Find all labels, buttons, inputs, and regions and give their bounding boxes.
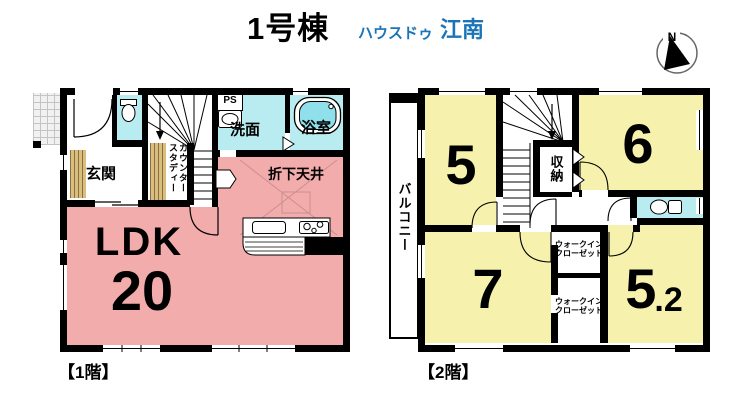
wall — [630, 197, 637, 218]
balcony-door — [418, 245, 425, 278]
floor2-caption: 【2階】 — [418, 364, 478, 381]
room6-label: 6 — [622, 116, 651, 172]
wic2-label: ウォークイン クローゼット — [555, 297, 603, 315]
study-counter — [150, 143, 166, 200]
room5-2-label: 5 .2 — [625, 261, 683, 317]
wall — [579, 190, 582, 197]
bathroom-label: 浴室 — [301, 121, 331, 136]
dropped-ceiling-label: 折下天井 — [268, 167, 324, 181]
wall — [67, 200, 95, 207]
study-counter-label: スタディー カウンター — [168, 143, 187, 193]
room-toilet-1f — [117, 95, 142, 140]
room5-2-dec: .2 — [654, 283, 682, 317]
balcony-label: バルコニー — [398, 182, 411, 252]
wall — [633, 225, 640, 232]
window — [696, 198, 703, 214]
wall — [637, 218, 703, 225]
storage-label: 収納 — [550, 155, 563, 183]
wall — [218, 150, 343, 157]
wall — [572, 95, 579, 192]
wall — [142, 95, 148, 205]
room5-2-int: 5 — [625, 261, 654, 317]
wic2-line2: クローゼット — [555, 306, 603, 315]
window — [455, 345, 503, 352]
window — [439, 88, 485, 95]
door-opening — [220, 150, 236, 157]
wall — [533, 192, 572, 197]
shoe-cabinet — [70, 150, 86, 198]
wall — [425, 225, 472, 232]
compass-n-bg — [663, 28, 680, 43]
compass: N — [657, 28, 697, 73]
wall — [496, 95, 503, 197]
wall — [112, 140, 148, 147]
wall — [60, 88, 67, 352]
wall — [343, 88, 350, 352]
floorplan-page: 1号棟 ハウスドゥ 江南 — [0, 0, 740, 406]
window — [696, 110, 703, 150]
floor1-caption: 【1階】 — [58, 364, 118, 381]
window — [60, 240, 67, 253]
compass-circle — [657, 33, 697, 73]
compass-north-label: N — [668, 30, 677, 44]
wall — [533, 147, 540, 197]
wall — [703, 88, 710, 352]
window — [60, 155, 67, 170]
brand-name: ハウスドゥ — [358, 26, 433, 41]
wall — [187, 143, 194, 205]
ps-label: PS — [220, 96, 240, 106]
wic1-label: ウォークイン クローゼット — [555, 240, 603, 258]
study-counter-line1: スタディー — [168, 143, 177, 193]
wall — [138, 200, 190, 207]
window — [630, 345, 675, 352]
room7-label: 7 — [472, 261, 501, 317]
wall — [285, 95, 290, 133]
genkan-label: 玄関 — [86, 167, 116, 182]
window — [293, 88, 308, 95]
page-title: 1号棟 — [247, 13, 329, 44]
window — [599, 88, 642, 95]
window — [120, 88, 138, 95]
room5-label: 5 — [445, 137, 474, 193]
compass-needle — [664, 36, 690, 70]
ldk-size-label: 20 — [111, 263, 173, 319]
entrance-porch — [33, 93, 60, 145]
window — [60, 265, 67, 310]
wall — [533, 140, 572, 147]
washroom-label: 洗面 — [230, 123, 260, 138]
entry-door-opening — [75, 88, 113, 95]
wic1-line1: ウォークイン — [555, 240, 603, 249]
room-toilet-2f — [637, 197, 703, 218]
wall — [496, 225, 520, 232]
window — [510, 88, 537, 95]
study-counter-line2: カウンター — [178, 143, 187, 193]
window — [212, 345, 295, 352]
wall — [33, 141, 41, 148]
wall — [305, 237, 343, 255]
wall — [418, 88, 425, 352]
brand-area: 江南 — [440, 19, 484, 41]
wall — [608, 190, 703, 197]
wall — [551, 313, 558, 343]
window — [103, 345, 160, 352]
wic1-line2: クローゼット — [555, 249, 603, 258]
wic2-line1: ウォークイン — [555, 297, 603, 306]
balcony-door — [418, 130, 425, 158]
ldk-label: LDK — [95, 222, 183, 262]
